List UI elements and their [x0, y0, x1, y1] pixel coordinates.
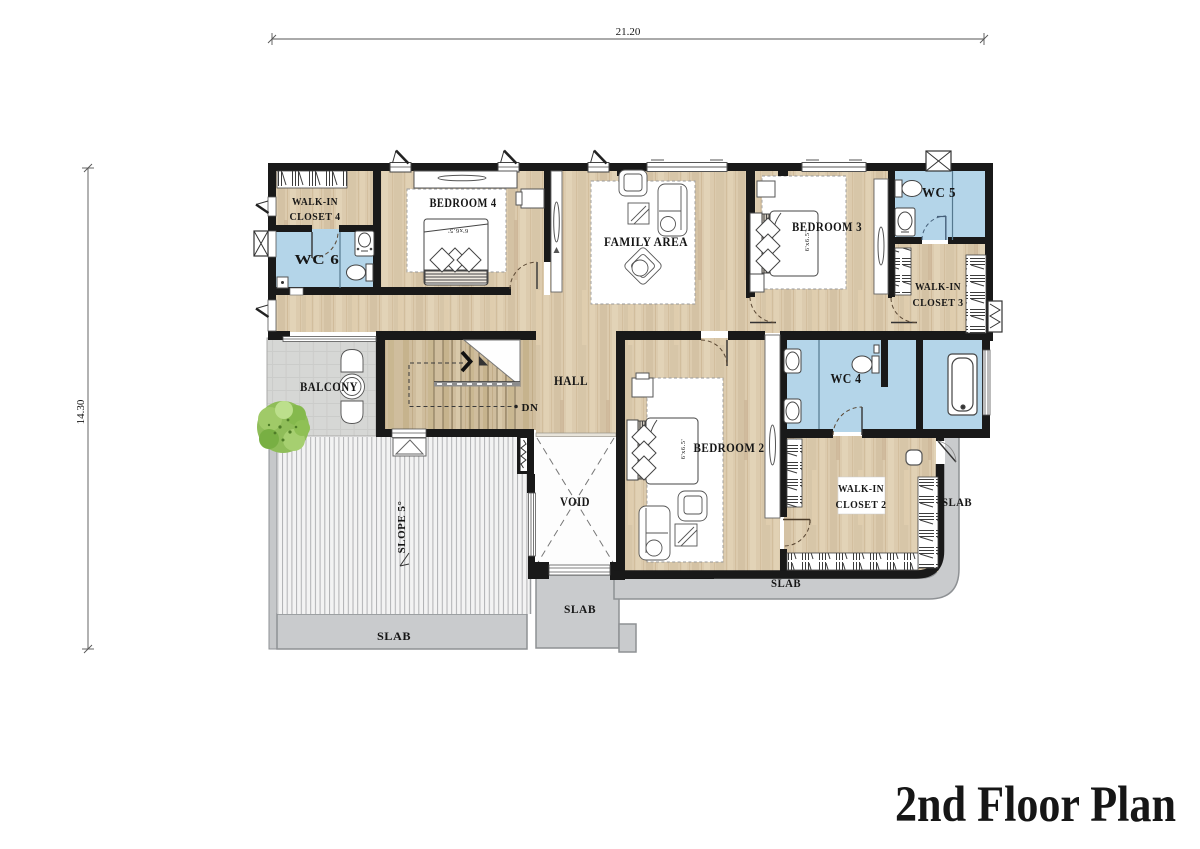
svg-text:2nd Floor Plan: 2nd Floor Plan: [895, 777, 1176, 833]
svg-text:6'x6.5': 6'x6.5': [448, 227, 468, 234]
svg-text:VOID: VOID: [560, 495, 590, 509]
svg-text:SLAB: SLAB: [942, 495, 972, 509]
svg-text:WC 5: WC 5: [922, 185, 956, 200]
svg-text:SLAB: SLAB: [377, 629, 411, 643]
svg-text:6'x6.5': 6'x6.5': [680, 439, 687, 459]
svg-text:BALCONY: BALCONY: [300, 380, 358, 394]
svg-text:WC 4: WC 4: [831, 371, 862, 386]
svg-text:BEDROOM 2: BEDROOM 2: [694, 441, 765, 455]
svg-text:WALK-IN: WALK-IN: [838, 484, 884, 495]
svg-text:6'x6.5': 6'x6.5': [804, 231, 811, 251]
svg-text:WC 6: WC 6: [295, 252, 340, 267]
svg-text:SLAB: SLAB: [564, 602, 596, 616]
svg-text:CLOSET 2: CLOSET 2: [836, 500, 887, 511]
svg-text:CLOSET 4: CLOSET 4: [290, 212, 341, 223]
svg-text:FAMILY AREA: FAMILY AREA: [604, 235, 688, 249]
svg-text:HALL: HALL: [554, 374, 588, 388]
svg-text:SLAB: SLAB: [771, 576, 801, 590]
svg-text:CLOSET 3: CLOSET 3: [913, 298, 964, 309]
svg-text:SLOPE 5°: SLOPE 5°: [396, 501, 408, 554]
svg-text:DN: DN: [522, 403, 539, 414]
svg-text:WALK-IN: WALK-IN: [915, 282, 961, 293]
svg-text:14.30: 14.30: [75, 399, 87, 424]
svg-text:BEDROOM 4: BEDROOM 4: [430, 196, 497, 210]
svg-text:BEDROOM 3: BEDROOM 3: [792, 220, 862, 234]
svg-text:21.20: 21.20: [616, 26, 641, 38]
svg-text:WALK-IN: WALK-IN: [292, 197, 338, 208]
